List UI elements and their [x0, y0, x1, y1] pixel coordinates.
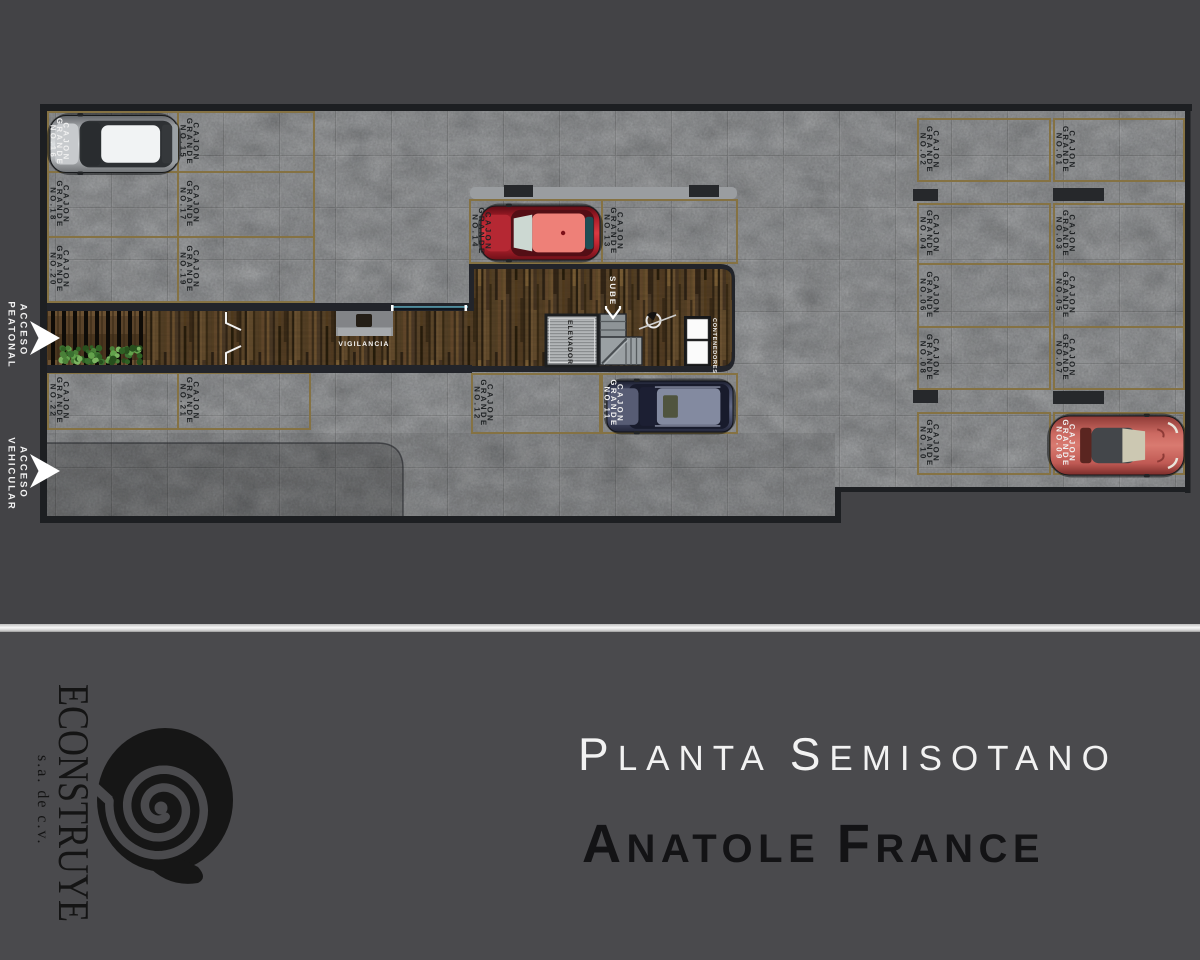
svg-text:s.a. de c.v.: s.a. de c.v.	[34, 755, 51, 846]
svg-text:NO.07: NO.07	[1054, 341, 1063, 376]
svg-text:NO.01: NO.01	[1054, 133, 1063, 168]
svg-text:ACCESO: ACCESO	[18, 304, 29, 357]
svg-text:NO.16: NO.16	[48, 125, 57, 160]
svg-text:NO.02: NO.02	[918, 133, 927, 168]
svg-text:NO.13: NO.13	[602, 214, 611, 249]
svg-text:NO.05: NO.05	[1054, 278, 1063, 313]
svg-text:NO.19: NO.19	[178, 252, 187, 287]
svg-text:NO.15: NO.15	[178, 125, 187, 160]
svg-text:NO.18: NO.18	[48, 187, 57, 222]
svg-text:ECONSTRUYE: ECONSTRUYE	[49, 684, 98, 922]
svg-text:NO.21: NO.21	[178, 384, 187, 419]
svg-text:NO.06: NO.06	[918, 278, 927, 313]
svg-text:VEHICULAR: VEHICULAR	[6, 437, 17, 510]
svg-text:NO.04: NO.04	[918, 217, 927, 252]
svg-text:ACCESO: ACCESO	[18, 446, 29, 499]
svg-text:NO.17: NO.17	[178, 187, 187, 222]
svg-text:VIGILANCIA: VIGILANCIA	[338, 341, 389, 348]
svg-text:NO.14: NO.14	[470, 214, 479, 249]
svg-text:NO.10: NO.10	[918, 426, 927, 461]
svg-text:PEATONAL: PEATONAL	[6, 301, 17, 368]
svg-text:ELEVADOR: ELEVADOR	[566, 320, 573, 365]
svg-text:NO.09: NO.09	[1054, 426, 1063, 461]
svg-text:NO.08: NO.08	[918, 341, 927, 376]
svg-text:SUBE: SUBE	[608, 276, 617, 306]
svg-text:CONTENEDORES: CONTENEDORES	[711, 318, 717, 374]
svg-text:NO.11: NO.11	[602, 386, 611, 420]
svg-text:NO.22: NO.22	[48, 384, 57, 419]
svg-text:NO.20: NO.20	[48, 252, 57, 287]
svg-text:NO.03: NO.03	[1054, 217, 1063, 252]
svg-text:NO.12: NO.12	[472, 386, 481, 421]
